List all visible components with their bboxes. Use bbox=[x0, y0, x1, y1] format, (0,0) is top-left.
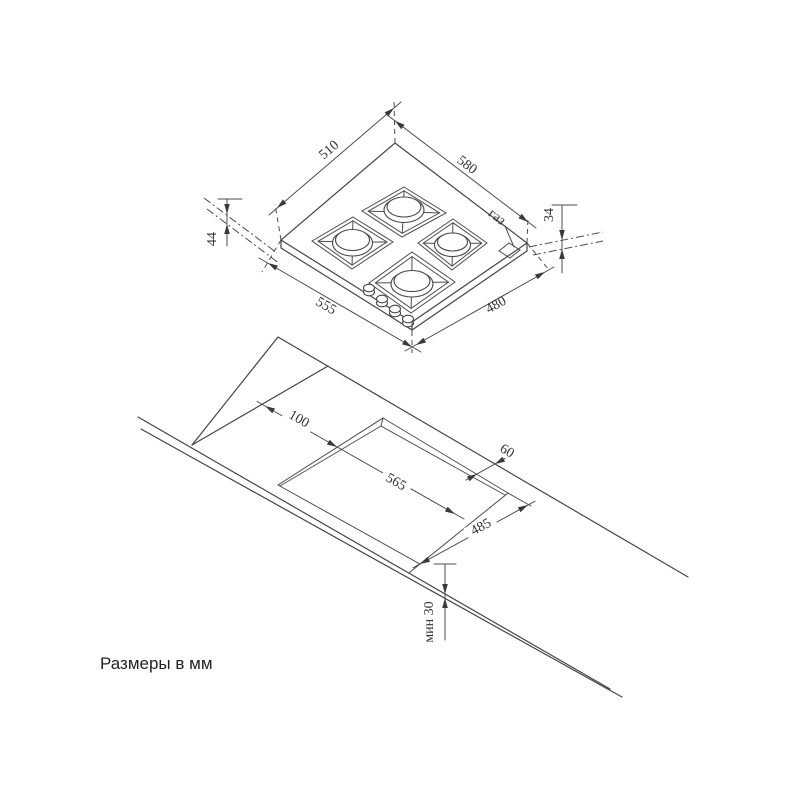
units-note: Размеры в мм bbox=[100, 654, 213, 673]
control-knob bbox=[390, 305, 401, 317]
dim-label-510: 510 bbox=[316, 138, 342, 163]
cutout-opening bbox=[278, 418, 508, 573]
worktop-front-edge bbox=[138, 417, 610, 689]
dimension-485: 485 bbox=[413, 493, 535, 568]
installation-drawing: газ 510 580 bbox=[0, 0, 800, 800]
control-knob bbox=[364, 284, 375, 296]
hob-isometric-view: газ 510 580 bbox=[204, 101, 603, 353]
dimension-44: 44 bbox=[204, 198, 280, 264]
cutout-outline bbox=[278, 418, 508, 564]
worktop-end-edge bbox=[192, 337, 278, 445]
worktop-joint-line bbox=[192, 366, 328, 445]
worktop bbox=[138, 337, 688, 697]
control-knob bbox=[377, 295, 388, 307]
dim-label-480: 480 bbox=[483, 294, 509, 317]
worktop-front-thickness-edge bbox=[141, 429, 622, 697]
dimension-100-565: 100 565 bbox=[257, 402, 464, 520]
worktop-back-edge bbox=[278, 337, 688, 577]
dim-label-555: 555 bbox=[313, 295, 339, 319]
dim-label-44: 44 bbox=[205, 232, 220, 246]
dimension-34: 34 bbox=[529, 205, 603, 273]
dim-label-min30: мин 30 bbox=[422, 601, 437, 642]
dimension-min30: мин 30 bbox=[422, 564, 456, 643]
dim-label-580: 580 bbox=[454, 153, 480, 178]
installation-drawing-page: газ 510 580 bbox=[0, 0, 800, 800]
dim-label-34: 34 bbox=[542, 208, 557, 222]
worktop-cutout-view: 100 565 60 485 bbox=[138, 337, 688, 697]
